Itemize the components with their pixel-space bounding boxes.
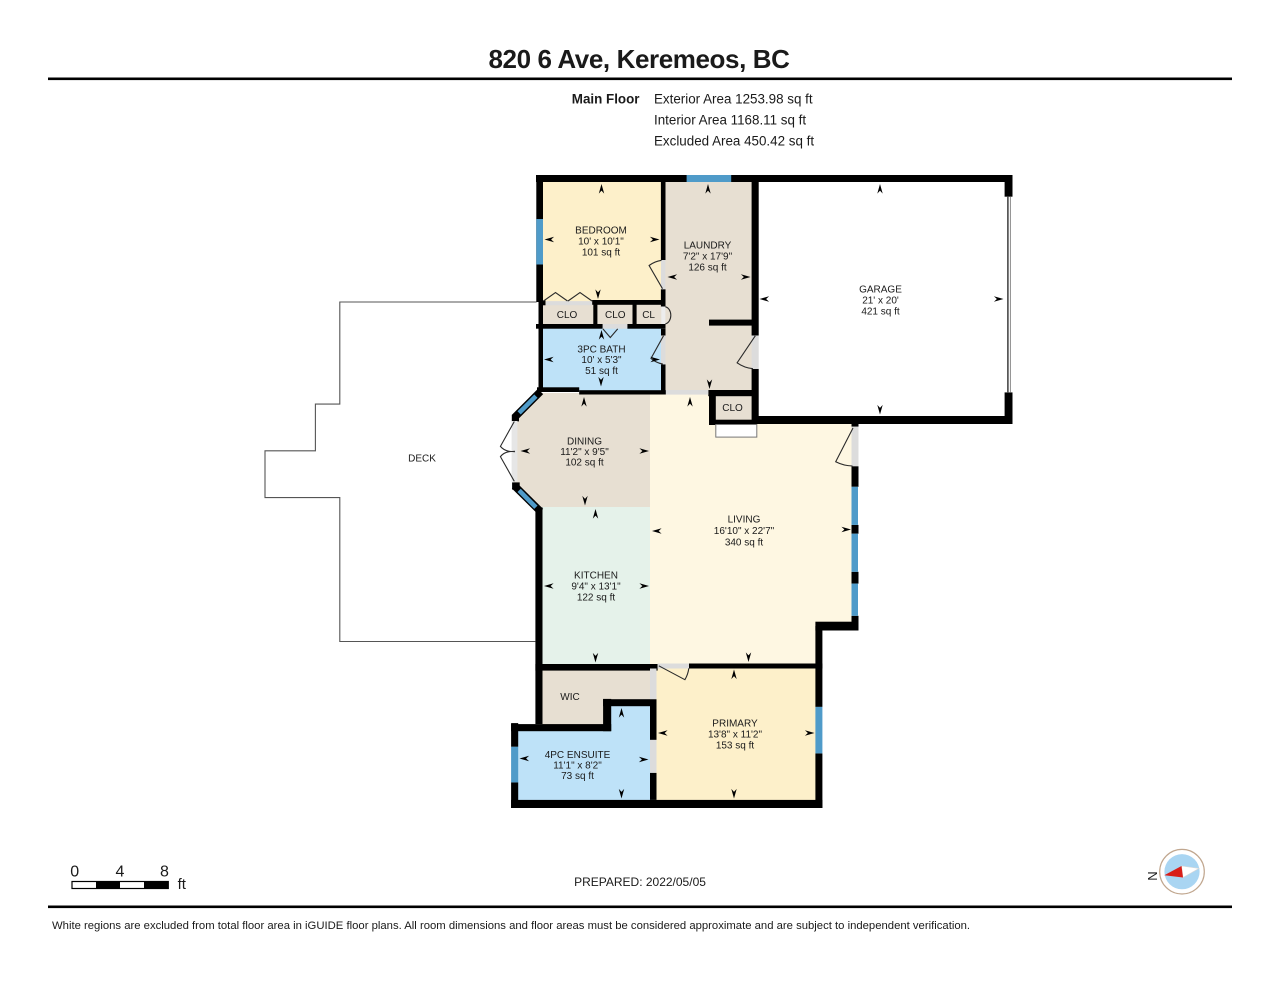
- svg-text:11'2" x 9'5": 11'2" x 9'5": [560, 447, 609, 458]
- svg-text:4: 4: [115, 864, 124, 881]
- svg-text:16'10" x 22'7": 16'10" x 22'7": [714, 526, 775, 537]
- svg-text:7'2" x 17'9": 7'2" x 17'9": [683, 252, 733, 263]
- svg-text:ft: ft: [178, 876, 187, 893]
- svg-text:CLO: CLO: [557, 310, 578, 321]
- svg-text:Interior Area 1168.11 sq ft: Interior Area 1168.11 sq ft: [654, 113, 806, 128]
- svg-text:CLO: CLO: [722, 403, 743, 414]
- svg-text:421 sq ft: 421 sq ft: [861, 307, 900, 318]
- svg-text:820 6 Ave, Keremeos, BC: 820 6 Ave, Keremeos, BC: [488, 44, 790, 74]
- svg-text:51 sq ft: 51 sq ft: [585, 366, 618, 377]
- svg-text:153 sq ft: 153 sq ft: [716, 741, 755, 752]
- svg-text:N: N: [1145, 871, 1160, 880]
- svg-text:Main Floor: Main Floor: [572, 92, 640, 107]
- svg-text:White regions are excluded fro: White regions are excluded from total fl…: [52, 920, 970, 932]
- svg-text:101 sq ft: 101 sq ft: [582, 248, 621, 259]
- svg-text:10' x 10'1": 10' x 10'1": [578, 237, 624, 248]
- svg-text:DECK: DECK: [408, 454, 436, 465]
- svg-text:8: 8: [160, 864, 169, 881]
- svg-text:11'1" x 8'2": 11'1" x 8'2": [553, 761, 602, 772]
- svg-text:9'4" x 13'1": 9'4" x 13'1": [571, 582, 621, 593]
- svg-text:LAUNDRY: LAUNDRY: [684, 241, 732, 252]
- svg-text:340 sq ft: 340 sq ft: [725, 538, 764, 549]
- svg-text:13'8" x 11'2": 13'8" x 11'2": [708, 730, 763, 741]
- svg-text:CLO: CLO: [605, 310, 626, 321]
- svg-text:Excluded Area 450.42 sq ft: Excluded Area 450.42 sq ft: [654, 134, 814, 149]
- svg-text:10' x 5'3": 10' x 5'3": [581, 355, 622, 366]
- svg-text:73 sq ft: 73 sq ft: [561, 771, 594, 782]
- svg-text:WIC: WIC: [560, 692, 579, 703]
- svg-text:LIVING: LIVING: [728, 515, 761, 526]
- svg-text:21' x 20': 21' x 20': [862, 296, 899, 307]
- svg-text:PRIMARY: PRIMARY: [712, 719, 758, 730]
- svg-text:Exterior Area 1253.98 sq ft: Exterior Area 1253.98 sq ft: [654, 92, 813, 107]
- svg-text:122 sq ft: 122 sq ft: [577, 593, 616, 604]
- svg-text:3PC BATH: 3PC BATH: [577, 345, 625, 356]
- svg-text:BEDROOM: BEDROOM: [575, 226, 627, 237]
- svg-text:GARAGE: GARAGE: [859, 285, 902, 296]
- svg-text:PREPARED: 2022/05/05: PREPARED: 2022/05/05: [574, 875, 706, 889]
- svg-text:CL: CL: [642, 310, 655, 321]
- svg-text:102 sq ft: 102 sq ft: [565, 458, 604, 469]
- svg-text:4PC ENSUITE: 4PC ENSUITE: [545, 750, 611, 761]
- svg-text:126 sq ft: 126 sq ft: [688, 263, 727, 274]
- svg-text:KITCHEN: KITCHEN: [574, 571, 618, 582]
- svg-text:0: 0: [70, 864, 79, 881]
- svg-text:DINING: DINING: [567, 437, 602, 448]
